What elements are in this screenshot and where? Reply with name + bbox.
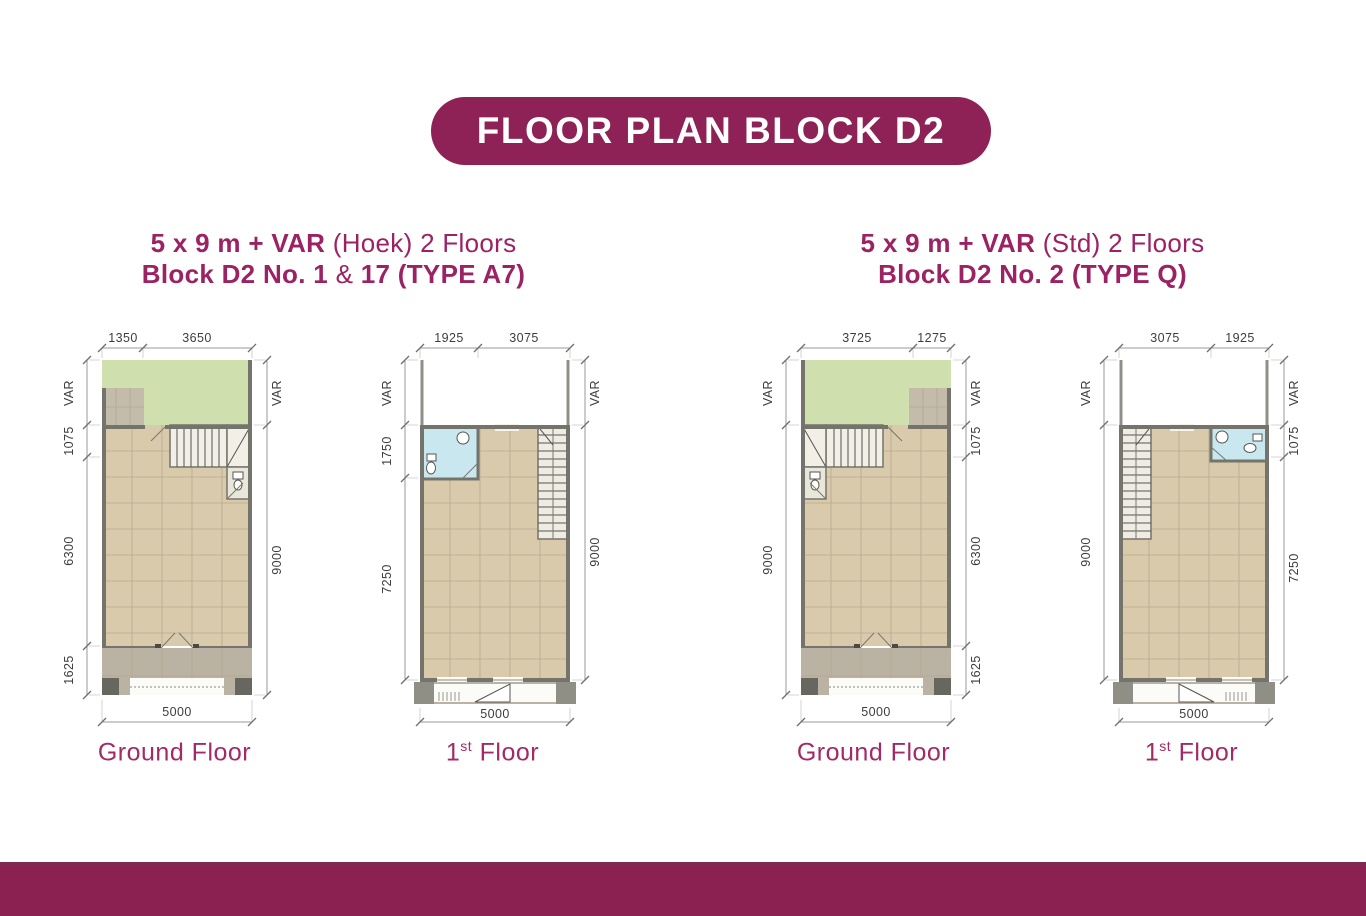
powder-room bbox=[803, 467, 826, 499]
svg-text:7250: 7250 bbox=[380, 564, 394, 593]
svg-text:1350: 1350 bbox=[108, 331, 137, 345]
unit-a7-figures: 1350 3650 VAR 1075 6300 1625 bbox=[57, 330, 611, 767]
garden-area bbox=[801, 360, 951, 425]
svg-text:1925: 1925 bbox=[1225, 331, 1254, 345]
svg-text:VAR: VAR bbox=[761, 380, 775, 406]
svg-text:VAR: VAR bbox=[62, 380, 76, 406]
dims-left: VAR 9000 bbox=[761, 356, 799, 699]
svg-text:VAR: VAR bbox=[270, 380, 284, 406]
unit-q-figures: 3725 1275 VAR 9000 bbox=[756, 330, 1310, 767]
dims-right: VAR 9000 bbox=[572, 356, 602, 684]
dims-right: VAR 1075 6300 1625 bbox=[953, 356, 983, 699]
svg-text:VAR: VAR bbox=[969, 380, 983, 406]
unit-type-a7: 5 x 9 m + VAR (Hoek) 2 Floors Block D2 N… bbox=[57, 228, 611, 767]
svg-text:1925: 1925 bbox=[434, 331, 463, 345]
dims-top: 1350 3650 bbox=[98, 331, 256, 358]
dims-bottom: 5000 bbox=[98, 700, 256, 726]
balcony-eave bbox=[414, 682, 576, 704]
svg-text:5000: 5000 bbox=[861, 705, 890, 719]
page-title: FLOOR PLAN BLOCK D2 bbox=[431, 97, 991, 165]
bathroom bbox=[422, 427, 478, 479]
svg-text:1275: 1275 bbox=[917, 331, 946, 345]
staircase bbox=[170, 425, 250, 467]
bathroom bbox=[1211, 427, 1267, 461]
svg-text:1075: 1075 bbox=[1287, 426, 1301, 455]
q-first-drawing: 3075 1925 VAR 9000 bbox=[1074, 330, 1310, 730]
figure-a7-first: 1925 3075 VAR 1750 7250 bbox=[375, 330, 611, 767]
figure-a7-ground: 1350 3650 VAR 1075 6300 1625 bbox=[57, 330, 293, 767]
svg-text:VAR: VAR bbox=[588, 380, 602, 406]
carport-porch bbox=[801, 648, 951, 695]
unit-q-title: 5 x 9 m + VAR (Std) 2 Floors Block D2 No… bbox=[861, 228, 1205, 290]
svg-text:1750: 1750 bbox=[380, 436, 394, 465]
garden-area bbox=[102, 360, 252, 425]
staircase bbox=[803, 425, 883, 467]
svg-text:9000: 9000 bbox=[1079, 537, 1093, 566]
figure-q-ground: 3725 1275 VAR 9000 bbox=[756, 330, 992, 767]
svg-text:6300: 6300 bbox=[969, 536, 983, 565]
unit-q-title-line2: Block D2 No. 2 (TYPE Q) bbox=[861, 259, 1205, 290]
svg-text:3075: 3075 bbox=[509, 331, 538, 345]
q-ground-label: Ground Floor bbox=[797, 738, 950, 767]
svg-text:1075: 1075 bbox=[62, 426, 76, 455]
svg-text:9000: 9000 bbox=[588, 537, 602, 566]
carport-porch bbox=[102, 648, 252, 695]
units-row: 5 x 9 m + VAR (Hoek) 2 Floors Block D2 N… bbox=[0, 228, 1366, 767]
a7-ground-drawing: 1350 3650 VAR 1075 6300 1625 bbox=[57, 330, 293, 730]
svg-text:5000: 5000 bbox=[1179, 707, 1208, 721]
svg-text:VAR: VAR bbox=[1079, 380, 1093, 406]
dims-left: VAR 1075 6300 1625 bbox=[62, 356, 100, 699]
dims-top: 1925 3075 bbox=[416, 331, 574, 358]
dims-right: VAR 1075 7250 bbox=[1271, 356, 1301, 684]
svg-text:5000: 5000 bbox=[480, 707, 509, 721]
figure-q-first: 3075 1925 VAR 9000 bbox=[1074, 330, 1310, 767]
svg-text:VAR: VAR bbox=[380, 380, 394, 406]
void-area bbox=[422, 360, 568, 425]
floor-plan-page: FLOOR PLAN BLOCK D2 5 x 9 m + VAR (Hoek)… bbox=[0, 0, 1366, 916]
dims-bottom: 5000 bbox=[1115, 707, 1273, 726]
svg-text:7250: 7250 bbox=[1287, 553, 1301, 582]
dims-right: VAR 9000 bbox=[254, 356, 284, 699]
svg-text:1075: 1075 bbox=[969, 426, 983, 455]
balcony-eave bbox=[1113, 682, 1275, 704]
svg-text:3725: 3725 bbox=[842, 331, 871, 345]
svg-text:3650: 3650 bbox=[182, 331, 211, 345]
unit-a7-title-line2: Block D2 No. 1 & 17 (TYPE A7) bbox=[142, 259, 525, 290]
svg-text:1625: 1625 bbox=[62, 655, 76, 684]
void-area bbox=[1121, 360, 1267, 425]
svg-text:1625: 1625 bbox=[969, 655, 983, 684]
dims-left: VAR 1750 7250 bbox=[380, 356, 418, 684]
a7-first-drawing: 1925 3075 VAR 1750 7250 bbox=[375, 330, 611, 730]
q-ground-drawing: 3725 1275 VAR 9000 bbox=[756, 330, 992, 730]
unit-a7-title-line1: 5 x 9 m + VAR (Hoek) 2 Floors bbox=[142, 228, 525, 259]
svg-text:VAR: VAR bbox=[1287, 380, 1301, 406]
dims-top: 3075 1925 bbox=[1115, 331, 1273, 358]
dims-bottom: 5000 bbox=[416, 707, 574, 726]
svg-text:9000: 9000 bbox=[761, 545, 775, 574]
a7-ground-label: Ground Floor bbox=[98, 738, 251, 767]
q-first-label: 1st Floor bbox=[1145, 738, 1238, 767]
staircase bbox=[1121, 427, 1151, 539]
dims-left: VAR 9000 bbox=[1079, 356, 1117, 684]
dims-bottom: 5000 bbox=[797, 700, 955, 726]
svg-text:9000: 9000 bbox=[270, 545, 284, 574]
unit-type-q: 5 x 9 m + VAR (Std) 2 Floors Block D2 No… bbox=[756, 228, 1310, 767]
powder-room bbox=[227, 467, 250, 499]
a7-first-label: 1st Floor bbox=[446, 738, 539, 767]
unit-a7-title: 5 x 9 m + VAR (Hoek) 2 Floors Block D2 N… bbox=[142, 228, 525, 290]
staircase bbox=[538, 427, 568, 539]
unit-q-title-line1: 5 x 9 m + VAR (Std) 2 Floors bbox=[861, 228, 1205, 259]
svg-text:6300: 6300 bbox=[62, 536, 76, 565]
svg-text:5000: 5000 bbox=[162, 705, 191, 719]
footer-accent-bar bbox=[0, 862, 1366, 916]
dims-top: 3725 1275 bbox=[797, 331, 955, 358]
svg-text:3075: 3075 bbox=[1150, 331, 1179, 345]
